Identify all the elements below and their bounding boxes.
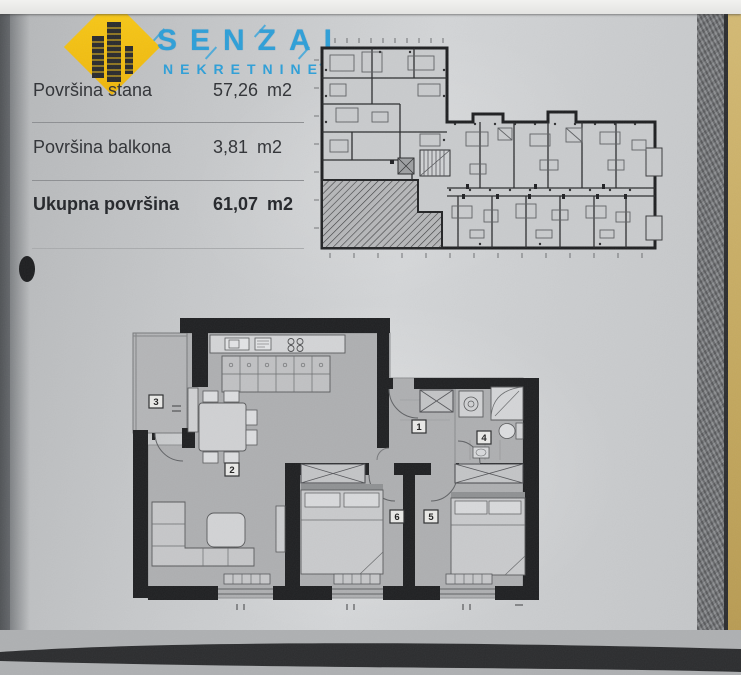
brand-subtitle: NEKRETNINE — [163, 61, 324, 77]
area-unit: m2 — [267, 80, 292, 100]
left-page-shadow — [10, 10, 30, 660]
area-value: 57,26 — [213, 80, 258, 100]
room-label-6: 6 — [394, 512, 399, 523]
scanner-top-edge — [0, 0, 741, 14]
apartment-floor-plan: 1 2 3 4 5 6 — [128, 308, 578, 618]
area-value: 3,81 — [213, 137, 248, 157]
table-surface-edge — [728, 0, 741, 660]
area-row-label: Površina balkona — [33, 137, 171, 158]
room-label-1: 1 — [416, 422, 422, 433]
scanned-flyer-photo: SENZAL NEKRETNINE Površina stana 57,26m2… — [0, 0, 741, 675]
room-label-4: 4 — [481, 433, 487, 444]
left-page-edge — [0, 10, 10, 660]
table-divider — [32, 180, 304, 181]
area-unit: m2 — [257, 137, 282, 157]
room-label-3: 3 — [153, 397, 158, 408]
brand-logo-buildings-icon — [84, 14, 142, 84]
room-label-5: 5 — [428, 512, 434, 523]
area-row-value-total: 61,07m2 — [213, 194, 293, 215]
right-page-edge-texture — [697, 10, 725, 655]
area-value: 61,07 — [213, 194, 258, 214]
table-divider — [32, 122, 304, 123]
area-row-value: 57,26m2 — [213, 80, 292, 101]
area-row-label: Površina stana — [33, 80, 152, 101]
building-floor-plan — [312, 26, 668, 264]
room-label-2: 2 — [229, 465, 234, 476]
area-row-value: 3,81m2 — [213, 137, 282, 158]
area-unit: m2 — [267, 194, 293, 214]
area-row-label-total: Ukupna površina — [33, 194, 179, 215]
table-divider — [32, 248, 304, 249]
